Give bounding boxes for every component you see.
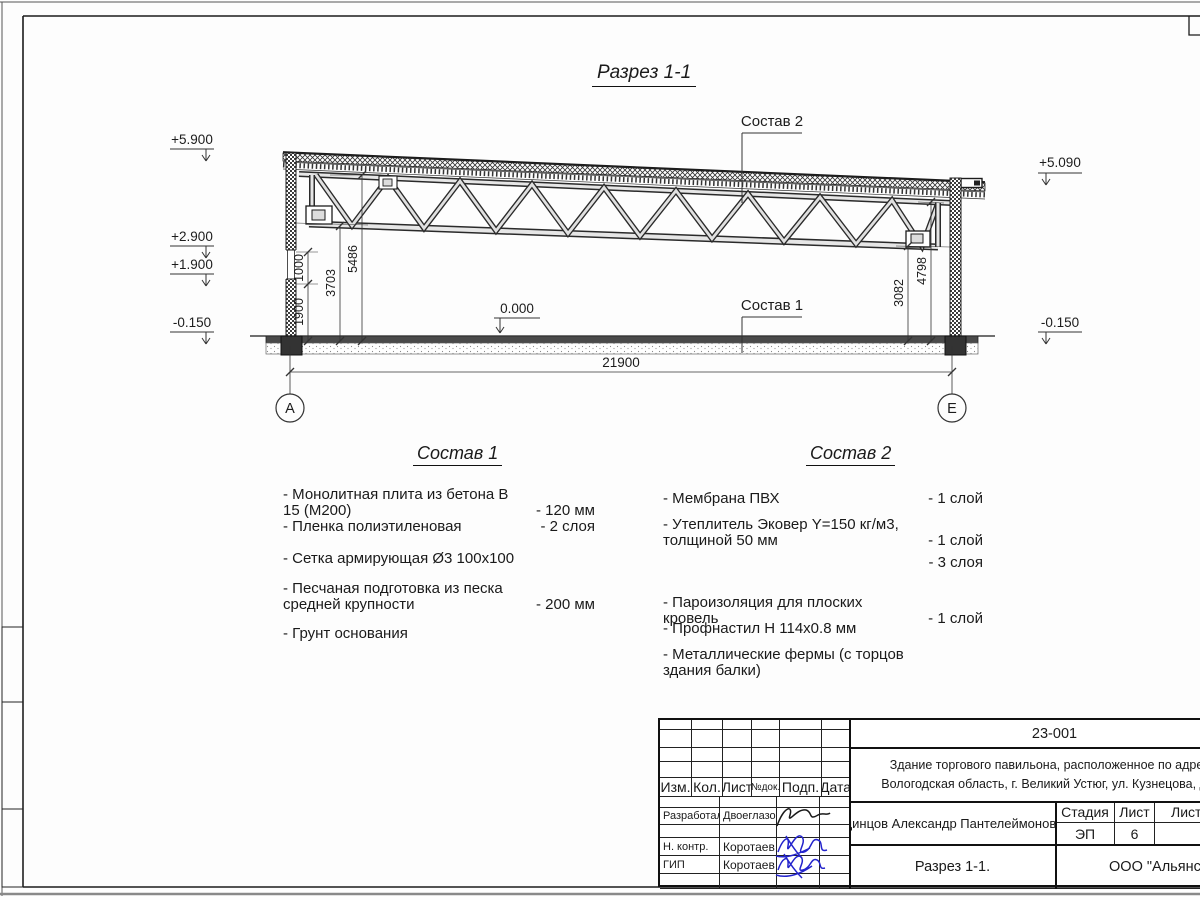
- dim-5486: 5486: [346, 245, 360, 273]
- comp1-item: - Пленка полиэтиленовая- 2 слоя: [283, 519, 595, 535]
- dim-1000: 1000: [292, 254, 306, 282]
- svg-text:+5.090: +5.090: [1039, 155, 1081, 170]
- sheet-title: Разрез 1-1.: [850, 845, 1056, 889]
- col-podp: Подп.: [780, 778, 822, 797]
- elevation-marks-right: +5.090 -0.150: [1038, 155, 1082, 344]
- doc-number: 23-001: [850, 720, 1200, 748]
- footing-right: [945, 336, 966, 355]
- elevation-marks-left: +5.900 +2.900 +1.900 -0.150: [170, 132, 214, 344]
- dim-21900: 21900: [602, 355, 640, 370]
- elevation-5090: +5.090: [1038, 155, 1082, 185]
- elevation-minus-0150-right: -0.150: [1038, 315, 1082, 344]
- project-description: Здание торгового павильона, расположенно…: [881, 756, 1200, 792]
- comp1-item: - Песчаная подготовка из песка средней к…: [283, 581, 595, 613]
- label-comp2: Состав 2: [741, 113, 803, 203]
- comp1-item: - Монолитная плита из бетона В 15 (М200)…: [283, 487, 595, 519]
- elevation-minus-0150-left: -0.150: [170, 315, 214, 344]
- elevation-5900: +5.900: [170, 132, 214, 161]
- axis-markers: А Е: [276, 394, 966, 422]
- comp2-item: - Металлические фермы (с торцов здания б…: [663, 647, 983, 679]
- row-ncontrol-label: Н. контр.: [660, 838, 720, 856]
- svg-text:0.000: 0.000: [500, 301, 534, 316]
- comp1-item: - Сетка армирующая Ø3 100х100: [283, 551, 595, 567]
- floor-level-mark: 0.000: [494, 301, 540, 333]
- elevation-1900: +1.900: [170, 257, 214, 286]
- stage-label: Стадия: [1056, 802, 1115, 823]
- row-ncontrol-name: Коротаев: [720, 838, 777, 856]
- svg-text:-0.150: -0.150: [173, 315, 211, 330]
- svg-text:+2.900: +2.900: [171, 229, 213, 244]
- comp2-item: - Профнастил Н 114х0.8 мм: [663, 621, 983, 637]
- sheets-value: [1155, 823, 1200, 845]
- sheets-label: Листов: [1155, 802, 1200, 823]
- col-data: Дата: [822, 778, 850, 797]
- col-izm: Изм.: [660, 778, 692, 797]
- comp2-item: - 3 слоя: [663, 555, 983, 571]
- comp2-label-text: Состав 2: [741, 113, 803, 130]
- dim-3082: 3082: [892, 279, 906, 307]
- comp1-heading: Состав 1: [413, 443, 502, 466]
- svg-text:+5.900: +5.900: [171, 132, 213, 147]
- drawing-title: Разрез 1-1: [592, 62, 696, 87]
- dim-4798: 4798: [915, 257, 929, 285]
- comp2-heading: Состав 2: [806, 443, 895, 466]
- author-name: Одинцов Александр Пантелеймонович: [850, 802, 1056, 845]
- row-developed-name: Двоеглазов: [720, 808, 777, 825]
- comp2-item: - Мембрана ПВХ- 1 слой: [663, 491, 983, 507]
- col-kol: Кол.: [692, 778, 723, 797]
- comp1-label-text: Состав 1: [741, 297, 803, 314]
- footing-left: [281, 336, 302, 355]
- dim-3703: 3703: [324, 269, 338, 297]
- dims-right: 3082 4798: [892, 198, 950, 345]
- comp2-item: - Утеплитель Эковер Y=150 кг/м3, толщино…: [663, 517, 983, 549]
- dim-1900: 1900: [292, 298, 306, 326]
- axis-letter-a: А: [285, 401, 295, 417]
- row-gip-name: Коротаев: [720, 856, 777, 874]
- axis-letter-e: Е: [947, 401, 957, 417]
- blueprint-page: { "page": { "drawing_title": "Разрез 1-1…: [0, 0, 1200, 900]
- company-name: ООО "Альянс": [1056, 845, 1200, 889]
- sheet-value: 6: [1115, 823, 1155, 845]
- svg-text:+1.900: +1.900: [171, 257, 213, 272]
- svg-text:-0.150: -0.150: [1041, 315, 1079, 330]
- col-ndoc: №док.: [752, 778, 780, 797]
- comp1-item: - Грунт основания: [283, 626, 595, 642]
- col-list: Лист: [723, 778, 752, 797]
- elevation-2900: +2.900: [170, 229, 214, 258]
- row-developed-label: Разработал: [660, 808, 720, 825]
- title-block: Изм. Кол. Лист №док. Подп. Дата Разработ…: [658, 718, 1200, 887]
- right-wall: [950, 178, 961, 341]
- row-gip-label: ГИП: [660, 856, 720, 874]
- stage-value: ЭП: [1056, 823, 1115, 845]
- sheet-label: Лист: [1115, 802, 1155, 823]
- frame-side-boxes: [2, 627, 23, 887]
